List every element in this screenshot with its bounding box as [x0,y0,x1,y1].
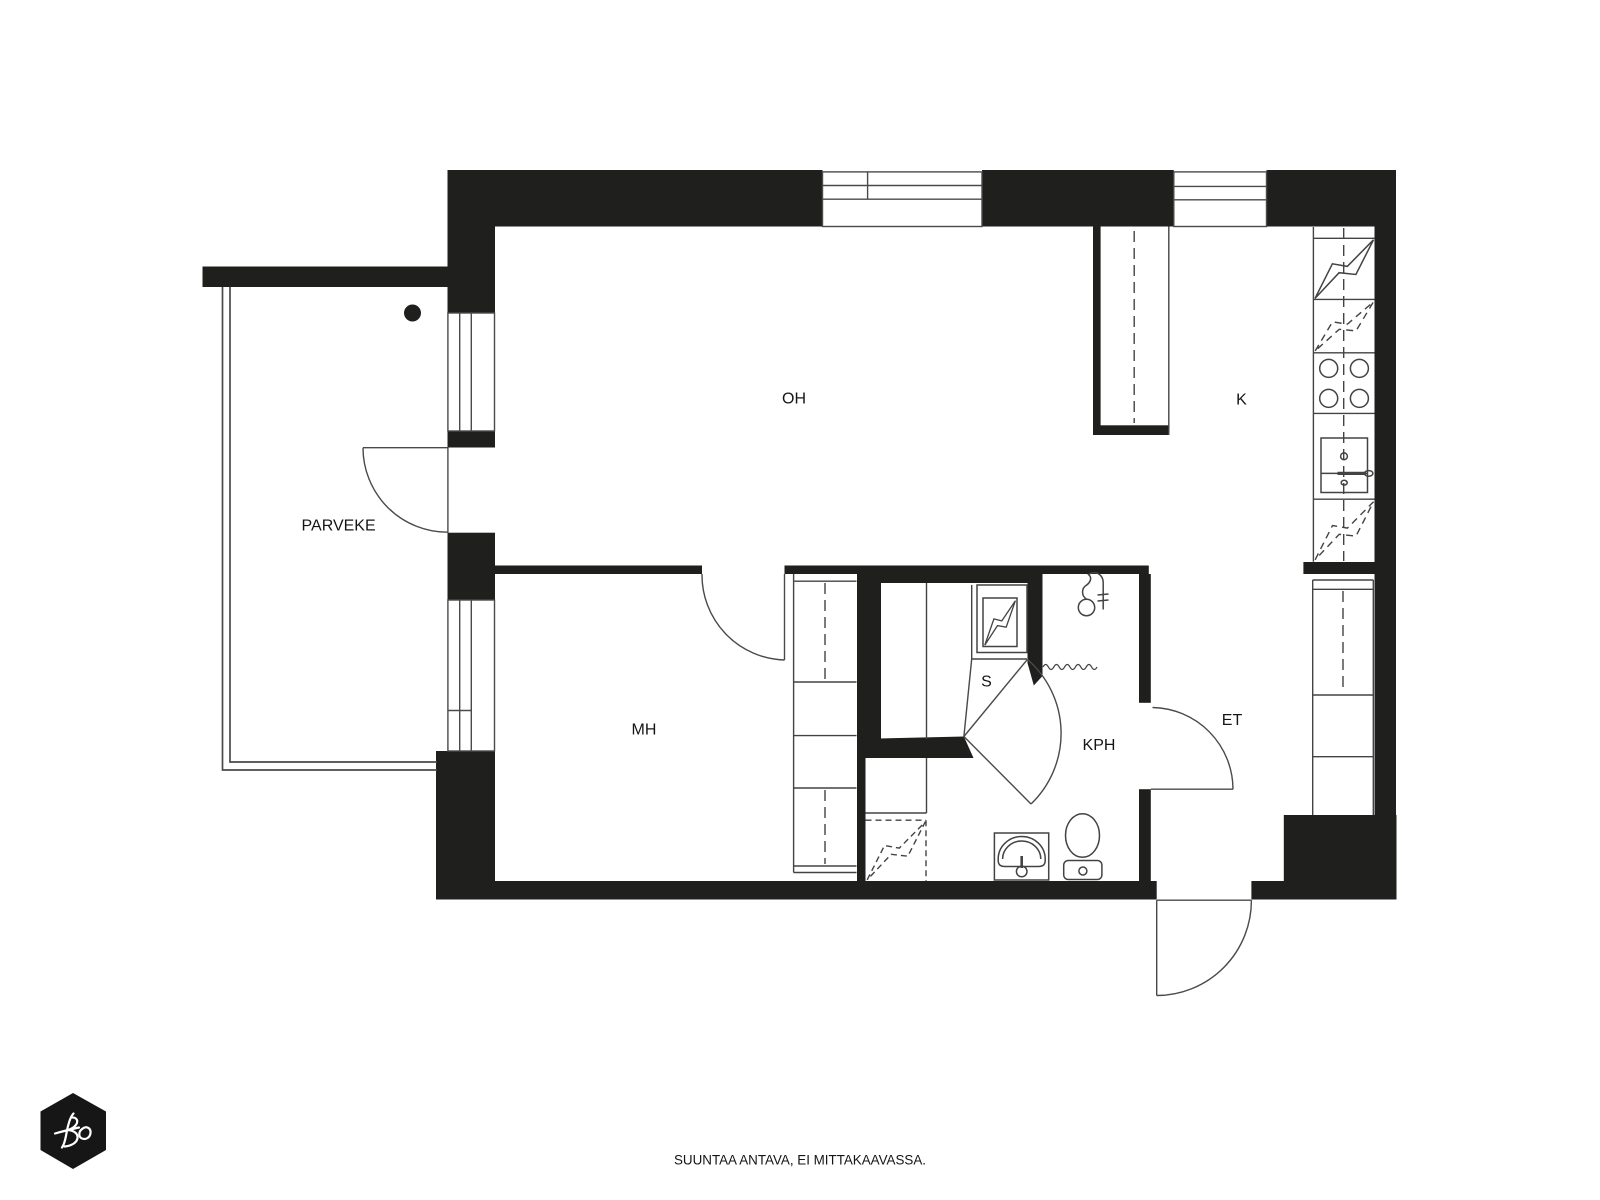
svg-text:KPH: KPH [1083,737,1116,754]
svg-text:ET: ET [1222,712,1243,729]
svg-text:SUUNTAA ANTAVA, EI MITTAKAAVAS: SUUNTAA ANTAVA, EI MITTAKAAVASSA. [674,1153,926,1168]
svg-text:PARVEKE: PARVEKE [302,518,376,535]
svg-text:S: S [981,674,992,691]
svg-text:K: K [1236,392,1247,409]
svg-text:OH: OH [782,391,806,408]
svg-text:MH: MH [632,722,657,739]
